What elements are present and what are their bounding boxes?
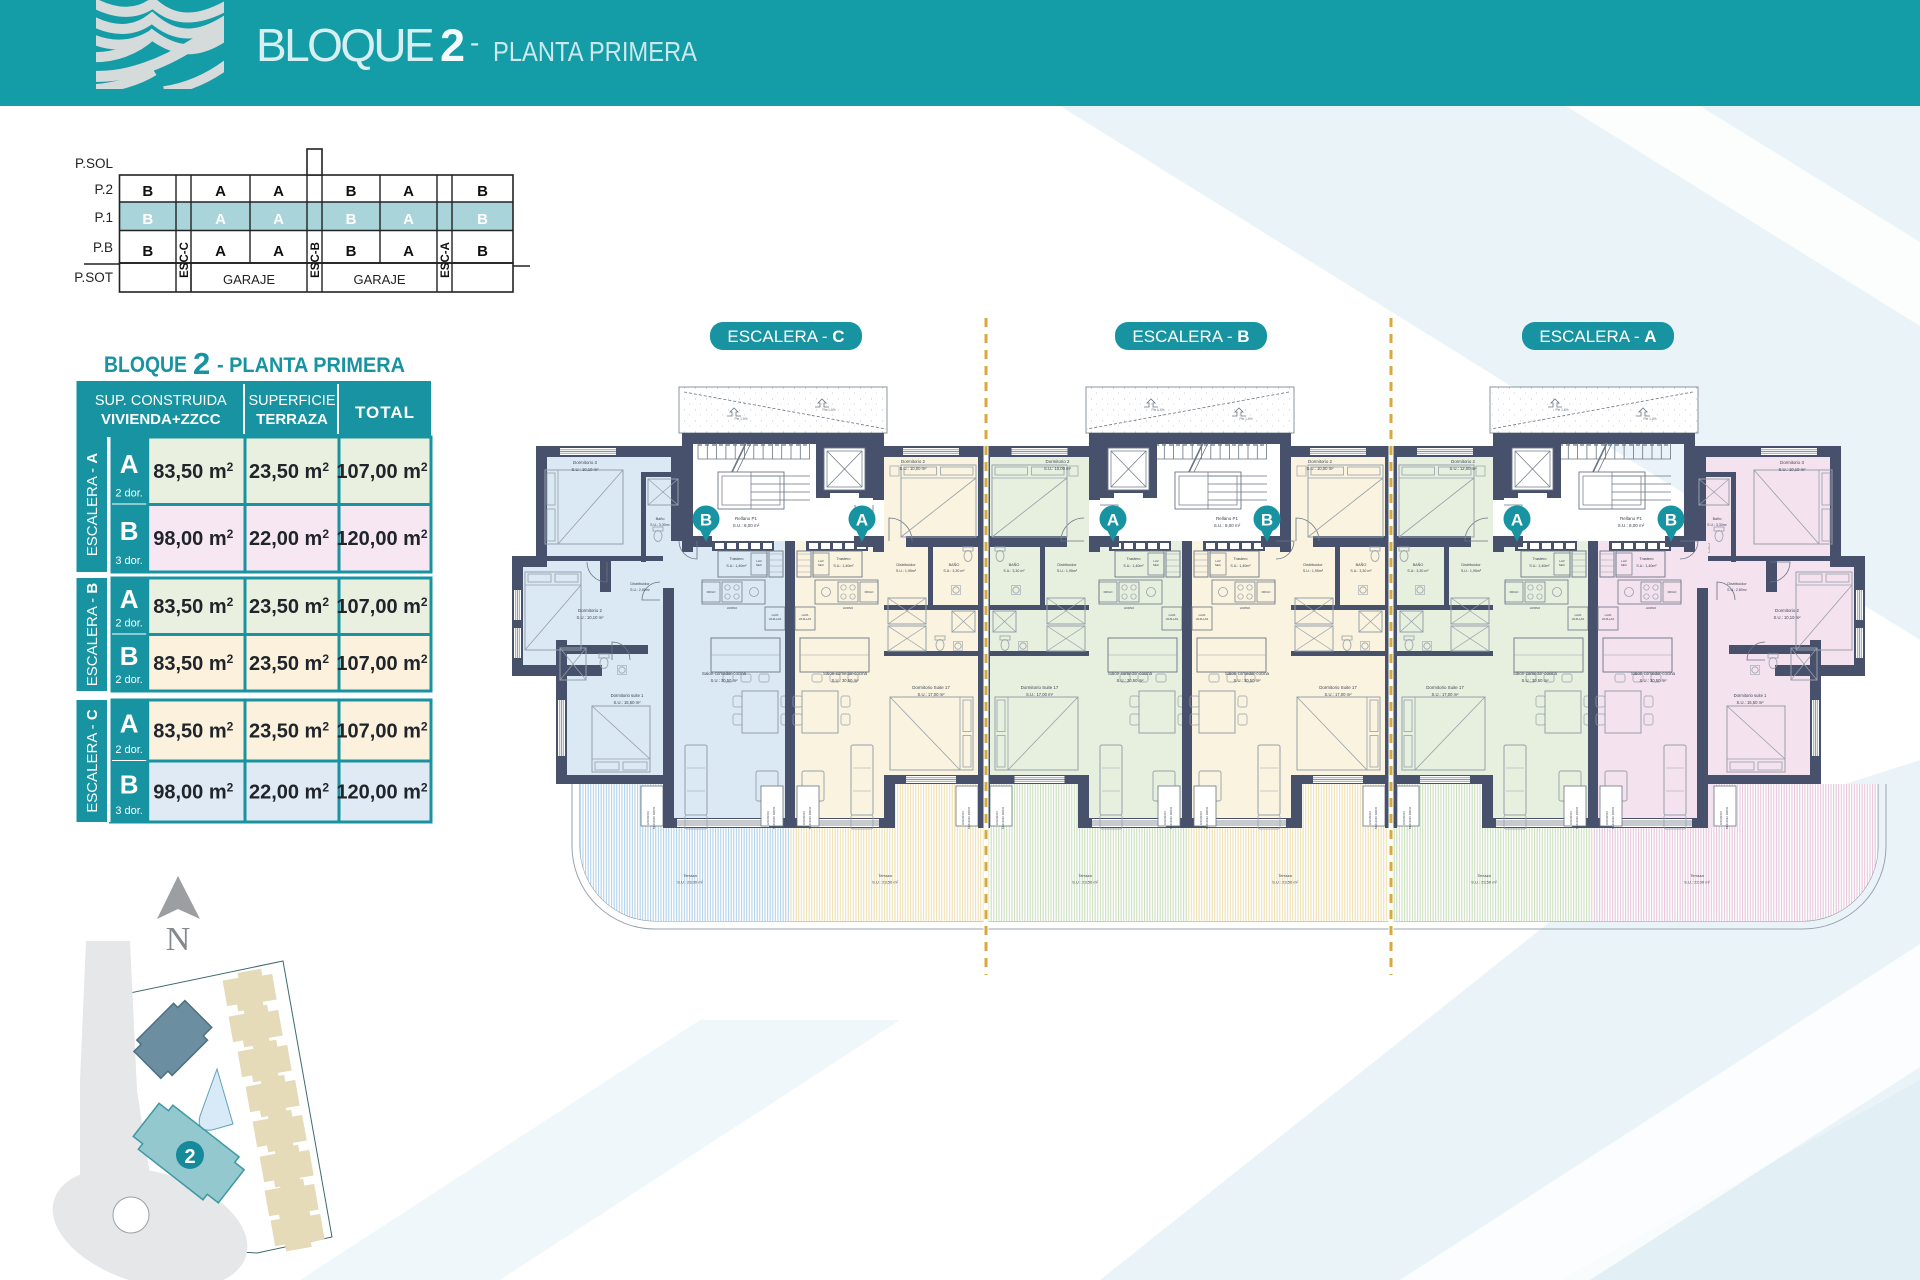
- svg-text:S.U.: 30,50 m²: S.U.: 30,50 m²: [1640, 678, 1668, 683]
- svg-text:BAÑO: BAÑO: [949, 562, 960, 567]
- svg-text:ESCALERA - C: ESCALERA - C: [727, 327, 844, 346]
- svg-text:SECADO ROPA: SECADO ROPA: [1001, 806, 1005, 829]
- svg-text:Distribuidor: Distribuidor: [896, 563, 916, 567]
- svg-text:A: A: [273, 243, 284, 260]
- svg-text:FRIGO: FRIGO: [1668, 590, 1678, 594]
- svg-text:Pte 1-6%: Pte 1-6%: [734, 417, 747, 421]
- svg-text:S.U.: 12,00 m²: S.U.: 12,00 m²: [1450, 466, 1478, 471]
- svg-text:SEC: SEC: [1215, 563, 1222, 567]
- svg-text:A: A: [273, 211, 284, 228]
- svg-text:Salon-comedor-cocina: Salon-comedor-cocina: [1631, 671, 1675, 676]
- svg-text:Baño: Baño: [656, 517, 665, 521]
- svg-text:98,00 m2: 98,00 m2: [153, 781, 233, 804]
- svg-text:S.U.: 15,50 m²: S.U.: 15,50 m²: [1737, 700, 1765, 705]
- svg-text:S.U.: 10,00 m²: S.U.: 10,00 m²: [1307, 466, 1335, 471]
- svg-text:B: B: [120, 516, 139, 546]
- svg-text:Dormitorio Suite 17: Dormitorio Suite 17: [1021, 685, 1059, 690]
- svg-text:SEC: SEC: [1559, 563, 1566, 567]
- svg-text:ESPACIO: ESPACIO: [1368, 811, 1372, 825]
- svg-text:S.U.: 15,50 m²: S.U.: 15,50 m²: [614, 700, 642, 705]
- svg-text:83,50 m2: 83,50 m2: [153, 720, 233, 743]
- svg-text:22,00 m2: 22,00 m2: [249, 781, 329, 804]
- svg-text:P.B: P.B: [93, 240, 113, 255]
- svg-text:S.U.: 8,00 m²: S.U.: 8,00 m²: [1214, 523, 1241, 528]
- svg-text:S.U.: 23,50 m²: S.U.: 23,50 m²: [1072, 880, 1098, 885]
- svg-text:S.U.: 3,30 m²: S.U.: 3,30 m²: [1407, 569, 1429, 573]
- svg-text:ESCALERA - A: ESCALERA - A: [1539, 327, 1656, 346]
- svg-text:Baño: Baño: [1713, 517, 1722, 521]
- svg-text:83,50 m2: 83,50 m2: [153, 652, 233, 675]
- svg-text:HORNO: HORNO: [843, 606, 854, 610]
- svg-text:Dormitorio Suite 17: Dormitorio Suite 17: [1426, 685, 1464, 690]
- svg-text:S.U.: 22,00 m²: S.U.: 22,00 m²: [1684, 880, 1710, 885]
- svg-text:Pte 1-6%: Pte 1-6%: [1151, 408, 1164, 412]
- svg-text:HORNO: HORNO: [1240, 606, 1251, 610]
- svg-text:Dormitorio 2: Dormitorio 2: [1451, 459, 1475, 464]
- svg-text:ESCALERA - C: ESCALERA - C: [84, 709, 101, 813]
- svg-text:Dormitorio Suite 17: Dormitorio Suite 17: [1319, 685, 1357, 690]
- svg-text:98,00 m2: 98,00 m2: [153, 527, 233, 550]
- svg-text:VAJILLAS: VAJILLAS: [1572, 617, 1585, 621]
- svg-text:A: A: [120, 584, 139, 614]
- svg-text:S.U.: 1,95m²: S.U.: 1,95m²: [1461, 569, 1482, 573]
- svg-text:B: B: [120, 641, 139, 671]
- svg-text:B: B: [346, 211, 357, 228]
- svg-text:SECADO ROPA: SECADO ROPA: [1169, 806, 1173, 829]
- svg-text:S.U.: 1,95m²: S.U.: 1,95m²: [896, 569, 917, 573]
- svg-text:- PLANTA PRIMERA: - PLANTA PRIMERA: [217, 354, 405, 377]
- svg-text:ESPACIO: ESPACIO: [1605, 811, 1609, 825]
- svg-text:S.U.: 1,40m²: S.U.: 1,40m²: [1529, 564, 1550, 568]
- svg-text:S.U.: 30,50 m²: S.U.: 30,50 m²: [832, 678, 860, 683]
- svg-text:B: B: [700, 511, 712, 530]
- svg-text:2 dor.: 2 dor.: [115, 618, 143, 630]
- svg-text:SEC: SEC: [818, 563, 825, 567]
- svg-text:A: A: [856, 511, 868, 530]
- svg-text:S.U.: 1,40m²: S.U.: 1,40m²: [1636, 564, 1657, 568]
- svg-text:B: B: [477, 211, 488, 228]
- svg-text:Trastero: Trastero: [1533, 557, 1547, 561]
- svg-text:A: A: [215, 243, 226, 260]
- svg-text:ESPACIO: ESPACIO: [1163, 811, 1167, 825]
- svg-text:SUP. CONSTRUIDA: SUP. CONSTRUIDA: [95, 393, 227, 409]
- svg-text:Rellano P1: Rellano P1: [1216, 516, 1239, 521]
- svg-text:Distribuidor: Distribuidor: [1303, 563, 1323, 567]
- svg-text:Rellano P1: Rellano P1: [1620, 516, 1643, 521]
- svg-text:S.U.: 10,10 m²: S.U.: 10,10 m²: [1774, 615, 1802, 620]
- svg-text:S.U.: 10,00 m²: S.U.: 10,00 m²: [1044, 466, 1072, 471]
- svg-text:ESPACIO: ESPACIO: [766, 811, 770, 825]
- svg-text:SECADO ROPA: SECADO ROPA: [1611, 806, 1615, 829]
- svg-text:S.U.: 3,30 m²: S.U.: 3,30 m²: [1350, 569, 1372, 573]
- svg-text:Terraza: Terraza: [683, 873, 697, 878]
- svg-text:23,50 m2: 23,50 m2: [249, 595, 329, 618]
- svg-text:Terraza: Terraza: [878, 873, 892, 878]
- svg-text:VAJILLAS: VAJILLAS: [1602, 617, 1615, 621]
- svg-text:S.U.: 17,00 m²: S.U.: 17,00 m²: [1432, 692, 1460, 697]
- svg-text:S.U.: 23,50 m²: S.U.: 23,50 m²: [1272, 880, 1298, 885]
- svg-text:VAJILLAS: VAJILLAS: [799, 617, 812, 621]
- svg-text:Terraza: Terraza: [1078, 873, 1092, 878]
- svg-text:ESPACIO: ESPACIO: [995, 811, 999, 825]
- svg-text:HORNO: HORNO: [1124, 606, 1135, 610]
- svg-text:Terraza: Terraza: [1690, 873, 1704, 878]
- svg-text:S.U.: 23,50 m²: S.U.: 23,50 m²: [1471, 880, 1497, 885]
- svg-text:Salon-comedor-cocina: Salon-comedor-cocina: [1513, 671, 1557, 676]
- svg-text:ESCALERA - B: ESCALERA - B: [84, 583, 101, 687]
- svg-text:BLOQUE: BLOQUE: [104, 352, 187, 377]
- svg-text:Dormitorio suite 1: Dormitorio suite 1: [1734, 693, 1767, 698]
- svg-text:Distribuidor: Distribuidor: [1057, 563, 1077, 567]
- svg-text:Distribuidor: Distribuidor: [630, 582, 650, 586]
- svg-text:Dormitorio suite 1: Dormitorio suite 1: [611, 693, 644, 698]
- svg-text:TOTAL: TOTAL: [355, 403, 415, 422]
- svg-text:Dormitorio 3: Dormitorio 3: [1780, 460, 1804, 465]
- svg-text:B: B: [142, 183, 153, 200]
- svg-text:SEC: SEC: [1153, 563, 1160, 567]
- svg-text:Dormitorio 2: Dormitorio 2: [901, 459, 925, 464]
- svg-text:A: A: [403, 211, 414, 228]
- svg-text:S.U.: 23,50 m²: S.U.: 23,50 m²: [872, 880, 898, 885]
- svg-text:S.U.: 30,50 m²: S.U.: 30,50 m²: [1234, 678, 1262, 683]
- svg-text:PLANTA PRIMERA: PLANTA PRIMERA: [493, 36, 697, 67]
- svg-text:ESCALERA - B: ESCALERA - B: [1132, 327, 1249, 346]
- svg-text:S.U.: 30,50 m²: S.U.: 30,50 m²: [711, 678, 739, 683]
- svg-text:S.U.: 3,30 m²: S.U.: 3,30 m²: [943, 569, 965, 573]
- svg-text:GARAJE: GARAJE: [223, 272, 275, 287]
- svg-text:B: B: [477, 183, 488, 200]
- svg-text:Pte 1-6%: Pte 1-6%: [822, 408, 835, 412]
- svg-text:HORNO: HORNO: [1646, 606, 1657, 610]
- svg-text:Salon-comedor-cocina: Salon-comedor-cocina: [1225, 671, 1269, 676]
- svg-text:B: B: [346, 183, 357, 200]
- svg-text:S.U.: 1,95m²: S.U.: 1,95m²: [1057, 569, 1078, 573]
- svg-text:Distribuidor: Distribuidor: [1461, 563, 1481, 567]
- svg-text:S.U.: 3,30 m²: S.U.: 3,30 m²: [1003, 569, 1025, 573]
- svg-text:Terraza: Terraza: [1477, 873, 1491, 878]
- svg-text:Trastero: Trastero: [1234, 557, 1248, 561]
- svg-text:S.U.: 1,40m²: S.U.: 1,40m²: [1123, 564, 1144, 568]
- svg-text:Salon-comedor-cocina: Salon-comedor-cocina: [1108, 671, 1152, 676]
- svg-text:120,00 m2: 120,00 m2: [336, 527, 428, 550]
- svg-text:3 dor.: 3 dor.: [115, 805, 143, 817]
- svg-text:N: N: [166, 921, 191, 958]
- svg-text:A: A: [1511, 511, 1523, 530]
- svg-text:P.SOL: P.SOL: [75, 156, 114, 171]
- svg-text:2: 2: [440, 20, 465, 71]
- svg-text:S.U.: 3,30m²: S.U.: 3,30m²: [1707, 523, 1727, 527]
- svg-text:83,50 m2: 83,50 m2: [153, 595, 233, 618]
- svg-text:Dormitorio 3: Dormitorio 3: [573, 460, 597, 465]
- svg-text:23,50 m2: 23,50 m2: [249, 720, 329, 743]
- svg-text:3 dor.: 3 dor.: [115, 555, 143, 567]
- svg-text:S.U.: 3,30m²: S.U.: 3,30m²: [650, 523, 670, 527]
- svg-text:S.U.: 1,40m²: S.U.: 1,40m²: [833, 564, 854, 568]
- svg-text:BAÑO: BAÑO: [1413, 562, 1424, 567]
- svg-text:S.U.: 2,80m²: S.U.: 2,80m²: [1727, 588, 1747, 592]
- svg-text:107,00 m2: 107,00 m2: [336, 720, 428, 743]
- svg-text:S.U.: 17,00 m²: S.U.: 17,00 m²: [1325, 692, 1353, 697]
- svg-text:2 dor.: 2 dor.: [115, 674, 143, 686]
- svg-text:Trastero: Trastero: [1127, 557, 1141, 561]
- svg-text:SECADO ROPA: SECADO ROPA: [772, 806, 776, 829]
- svg-text:ESPACIO: ESPACIO: [961, 811, 965, 825]
- svg-text:Trastero: Trastero: [1640, 557, 1654, 561]
- svg-text:SUPERFICIE: SUPERFICIE: [248, 393, 335, 409]
- svg-text:Distribuidor: Distribuidor: [1727, 582, 1747, 586]
- svg-text:GARAJE: GARAJE: [353, 272, 405, 287]
- svg-text:S.U.: 10,10 m²: S.U.: 10,10 m²: [1779, 467, 1807, 472]
- svg-text:ESPACIO: ESPACIO: [1402, 811, 1406, 825]
- svg-text:S.U.: 8,00 m²: S.U.: 8,00 m²: [1618, 523, 1645, 528]
- svg-text:VIVIENDA+ZZCC: VIVIENDA+ZZCC: [101, 411, 221, 428]
- svg-text:HORNO: HORNO: [727, 606, 738, 610]
- svg-text:Pte 1-6%: Pte 1-6%: [1643, 417, 1656, 421]
- svg-text:ESPACIO: ESPACIO: [646, 811, 650, 825]
- svg-text:107,00 m2: 107,00 m2: [336, 652, 428, 675]
- svg-text:A: A: [1107, 511, 1119, 530]
- svg-text:FRIGO: FRIGO: [1104, 590, 1114, 594]
- svg-text:BAÑO: BAÑO: [1356, 562, 1367, 567]
- svg-text:BAÑO: BAÑO: [1009, 562, 1020, 567]
- svg-text:ESC-B: ESC-B: [310, 242, 322, 278]
- svg-text:Trastero: Trastero: [730, 557, 744, 561]
- svg-text:S.U.: 10,10 m²: S.U.: 10,10 m²: [572, 467, 600, 472]
- svg-text:S.U.: 10,10 m²: S.U.: 10,10 m²: [577, 615, 605, 620]
- svg-text:Pte 1-6%: Pte 1-6%: [1239, 417, 1252, 421]
- svg-text:SECADO ROPA: SECADO ROPA: [808, 806, 812, 829]
- svg-text:ESPACIO: ESPACIO: [1199, 811, 1203, 825]
- svg-text:Dormitorio 2: Dormitorio 2: [1775, 608, 1799, 613]
- svg-text:ESPACIO: ESPACIO: [1569, 811, 1573, 825]
- svg-text:TERRAZA: TERRAZA: [256, 411, 328, 428]
- svg-text:B: B: [1665, 511, 1677, 530]
- svg-text:ESPACIO: ESPACIO: [802, 811, 806, 825]
- svg-text:A: A: [215, 183, 226, 200]
- svg-text:Trastero: Trastero: [837, 557, 851, 561]
- svg-text:S.U.: 8,00 m²: S.U.: 8,00 m²: [733, 523, 760, 528]
- svg-text:ESC-C: ESC-C: [179, 242, 191, 278]
- svg-text:S.U.: 10,00 m²: S.U.: 10,00 m²: [900, 466, 928, 471]
- svg-text:2: 2: [193, 346, 210, 381]
- svg-text:A: A: [120, 709, 139, 739]
- svg-text:S.U.: 1,40m²: S.U.: 1,40m²: [726, 564, 747, 568]
- svg-text:P.SOT: P.SOT: [74, 270, 113, 285]
- svg-text:A: A: [273, 183, 284, 200]
- svg-text:VAJILLAS: VAJILLAS: [1196, 617, 1209, 621]
- svg-text:SEC: SEC: [756, 563, 763, 567]
- svg-text:SECADO ROPA: SECADO ROPA: [652, 806, 656, 829]
- svg-text:S.U.: 23,00 m²: S.U.: 23,00 m²: [677, 880, 703, 885]
- svg-text:Dormitorio Suite 17: Dormitorio Suite 17: [912, 685, 950, 690]
- svg-text:A: A: [215, 211, 226, 228]
- svg-text:S.U.: 30,50 m²: S.U.: 30,50 m²: [1522, 678, 1550, 683]
- svg-text:P.2: P.2: [94, 182, 113, 197]
- svg-text:2: 2: [184, 1146, 195, 1168]
- svg-text:Pte 1-6%: Pte 1-6%: [1555, 408, 1568, 412]
- svg-text:SECADO ROPA: SECADO ROPA: [1408, 806, 1412, 829]
- svg-text:83,50 m2: 83,50 m2: [153, 460, 233, 483]
- svg-text:-: -: [470, 27, 479, 58]
- svg-text:B: B: [1261, 511, 1273, 530]
- svg-text:2 dor.: 2 dor.: [115, 744, 143, 756]
- svg-text:FRIGO: FRIGO: [865, 590, 875, 594]
- svg-text:S.U.: 17,00 m²: S.U.: 17,00 m²: [918, 692, 946, 697]
- svg-text:VAJILLAS: VAJILLAS: [1166, 617, 1179, 621]
- svg-text:S.U.: 30,50 m²: S.U.: 30,50 m²: [1117, 678, 1145, 683]
- svg-text:A: A: [120, 449, 139, 479]
- svg-text:Salon-comedor-cocina: Salon-comedor-cocina: [823, 671, 867, 676]
- svg-text:Dormitorio 2: Dormitorio 2: [1046, 459, 1070, 464]
- svg-text:BLOQUE: BLOQUE: [256, 19, 433, 71]
- svg-text:S.U.: 2,80m²: S.U.: 2,80m²: [630, 588, 650, 592]
- svg-text:A: A: [403, 243, 414, 260]
- svg-text:23,50 m2: 23,50 m2: [249, 460, 329, 483]
- svg-text:22,00 m2: 22,00 m2: [249, 527, 329, 550]
- svg-text:120,00 m2: 120,00 m2: [336, 781, 428, 804]
- svg-text:Rellano P1: Rellano P1: [735, 516, 758, 521]
- svg-text:ESCALERA - A: ESCALERA - A: [84, 453, 101, 557]
- svg-text:S.U.: 1,40m²: S.U.: 1,40m²: [1230, 564, 1251, 568]
- svg-text:SECADO ROPA: SECADO ROPA: [1725, 806, 1729, 829]
- svg-text:ESC-A: ESC-A: [440, 242, 452, 278]
- svg-text:B: B: [120, 770, 139, 800]
- svg-text:SEC: SEC: [1621, 563, 1628, 567]
- svg-text:SECADO ROPA: SECADO ROPA: [1575, 806, 1579, 829]
- svg-text:S.U.: 1,95m²: S.U.: 1,95m²: [1303, 569, 1324, 573]
- svg-text:HORNO: HORNO: [1530, 606, 1541, 610]
- svg-text:SECADO ROPA: SECADO ROPA: [1205, 806, 1209, 829]
- svg-text:S.U.: 17,00 m²: S.U.: 17,00 m²: [1026, 692, 1054, 697]
- svg-text:Salon-comedor-cocina: Salon-comedor-cocina: [702, 671, 746, 676]
- svg-text:SECADO ROPA: SECADO ROPA: [1374, 806, 1378, 829]
- svg-text:B: B: [142, 211, 153, 228]
- svg-text:107,00 m2: 107,00 m2: [336, 595, 428, 618]
- svg-text:B: B: [477, 243, 488, 260]
- svg-text:FRIGO: FRIGO: [1510, 590, 1520, 594]
- svg-text:B: B: [346, 243, 357, 260]
- svg-text:B: B: [142, 243, 153, 260]
- svg-text:SECADO ROPA: SECADO ROPA: [967, 806, 971, 829]
- svg-text:2 dor.: 2 dor.: [115, 488, 143, 500]
- svg-text:FRIGO: FRIGO: [1262, 590, 1272, 594]
- svg-text:Terraza: Terraza: [1278, 873, 1292, 878]
- svg-text:Dormitorio 2: Dormitorio 2: [1308, 459, 1332, 464]
- svg-text:VAJILLAS: VAJILLAS: [769, 617, 782, 621]
- svg-text:A: A: [403, 183, 414, 200]
- svg-text:P.1: P.1: [94, 210, 113, 225]
- svg-text:Dormitorio 2: Dormitorio 2: [578, 608, 602, 613]
- svg-text:ESPACIO: ESPACIO: [1719, 811, 1723, 825]
- svg-text:23,50 m2: 23,50 m2: [249, 652, 329, 675]
- svg-text:107,00 m2: 107,00 m2: [336, 460, 428, 483]
- svg-text:FRIGO: FRIGO: [707, 590, 717, 594]
